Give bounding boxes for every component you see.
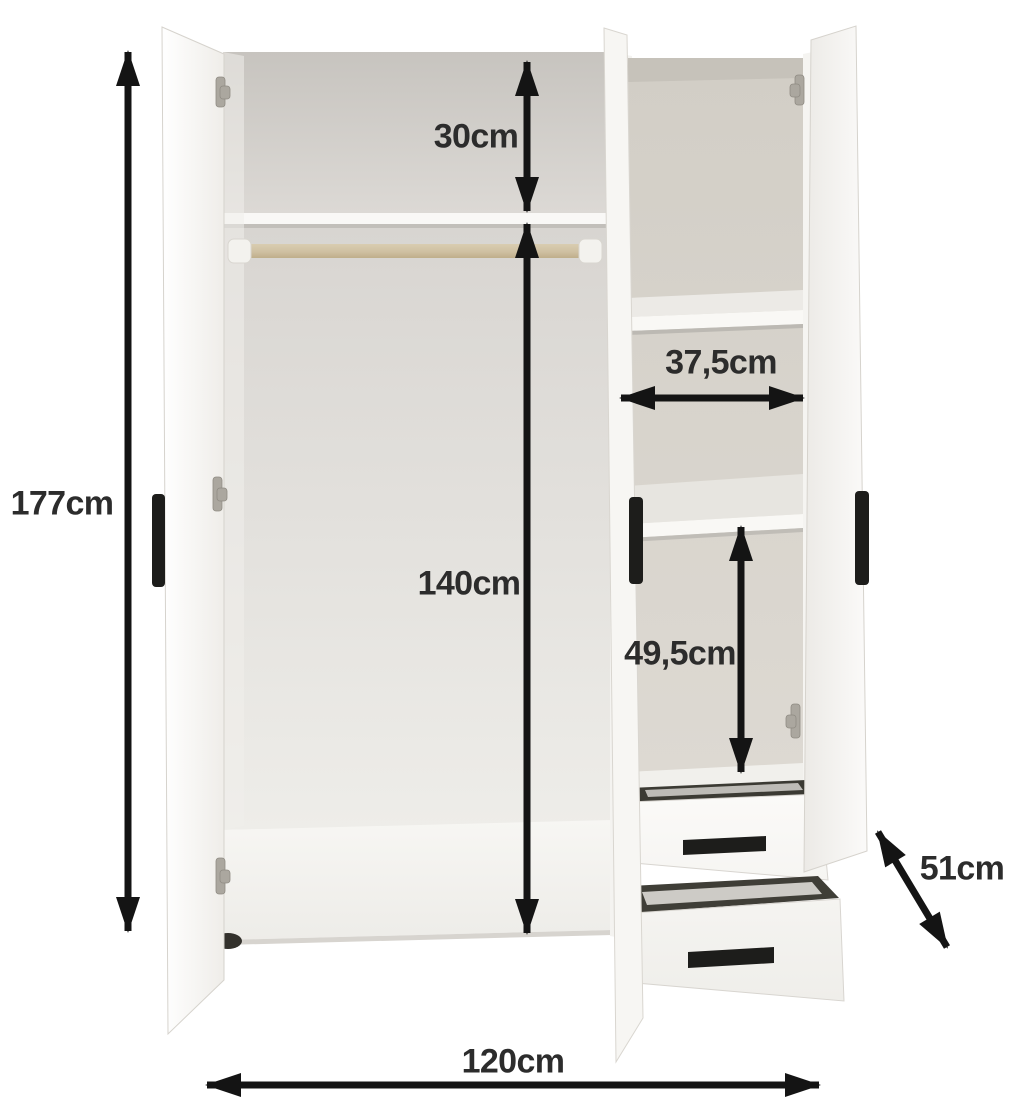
main-top-shelf <box>223 213 612 224</box>
middle-door-handle <box>629 497 643 584</box>
main-top-shelf-shadow <box>223 224 612 228</box>
left-door-panel <box>162 27 224 1034</box>
main-lower-back-panel <box>223 228 612 830</box>
dim-label-shelf-width: 37,5cm <box>665 344 777 383</box>
left-door-handle <box>152 494 165 587</box>
right-door-panel <box>804 26 867 872</box>
main-left-side-wall <box>223 52 244 830</box>
wardrobe-dimension-diagram: 177cm 30cm 140cm 37,5cm 49,5cm 51cm 120c… <box>0 0 1024 1099</box>
hanging-rail-bar <box>236 244 597 258</box>
main-floor-panel <box>223 820 612 940</box>
drawer-upper-front <box>630 794 828 880</box>
right-ceiling-shadow <box>628 58 803 82</box>
hanging-rail-bracket-right <box>579 239 602 263</box>
hanging-rail-bracket-left <box>228 239 251 263</box>
drawer-lower <box>631 876 844 1001</box>
main-upper-back-panel <box>223 52 612 213</box>
dim-label-depth: 51cm <box>920 850 1005 889</box>
dim-label-lower-shelf: 49,5cm <box>624 635 736 674</box>
right-door-handle <box>855 491 869 585</box>
dim-label-height: 177cm <box>11 485 114 524</box>
left-door <box>152 27 224 1034</box>
wardrobe-illustration <box>0 0 1024 1099</box>
drawer-upper <box>629 780 828 880</box>
dim-label-hanging-height: 140cm <box>418 565 521 604</box>
dim-label-top-shelf: 30cm <box>434 118 519 157</box>
right-door <box>804 26 869 872</box>
dim-label-width: 120cm <box>462 1043 565 1082</box>
